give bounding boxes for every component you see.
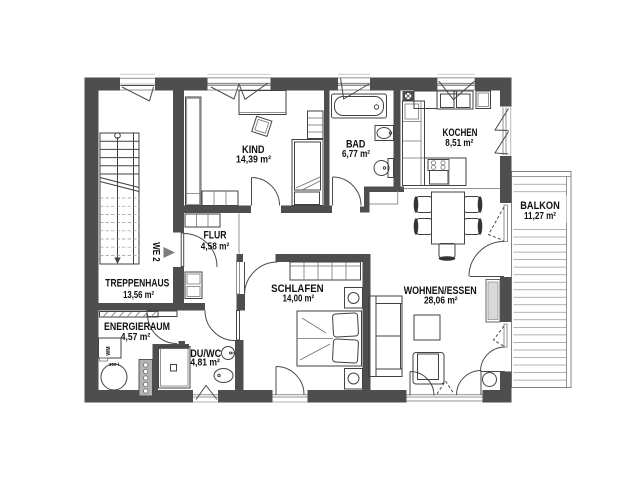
- svg-text:11,27 m²: 11,27 m²: [524, 211, 556, 222]
- svg-text:6,77 m²: 6,77 m²: [342, 149, 370, 160]
- svg-text:14,00 m²: 14,00 m²: [283, 294, 315, 305]
- svg-text:4,58 m²: 4,58 m²: [201, 241, 230, 252]
- svg-text:13,56 m²: 13,56 m²: [123, 290, 154, 301]
- svg-text:FLUR: FLUR: [204, 230, 227, 242]
- svg-text:TREPPENHAUS: TREPPENHAUS: [105, 277, 169, 289]
- svg-text:28,06 m²: 28,06 m²: [424, 296, 458, 307]
- svg-text:WE 2: WE 2: [150, 242, 162, 262]
- svg-text:WM: WM: [106, 346, 112, 355]
- svg-text:300 l: 300 l: [109, 362, 119, 367]
- svg-text:4,57 m²: 4,57 m²: [121, 332, 151, 343]
- svg-text:14,39 m²: 14,39 m²: [236, 155, 271, 166]
- svg-text:4,81 m²: 4,81 m²: [190, 358, 220, 369]
- svg-text:8,51 m²: 8,51 m²: [445, 138, 473, 149]
